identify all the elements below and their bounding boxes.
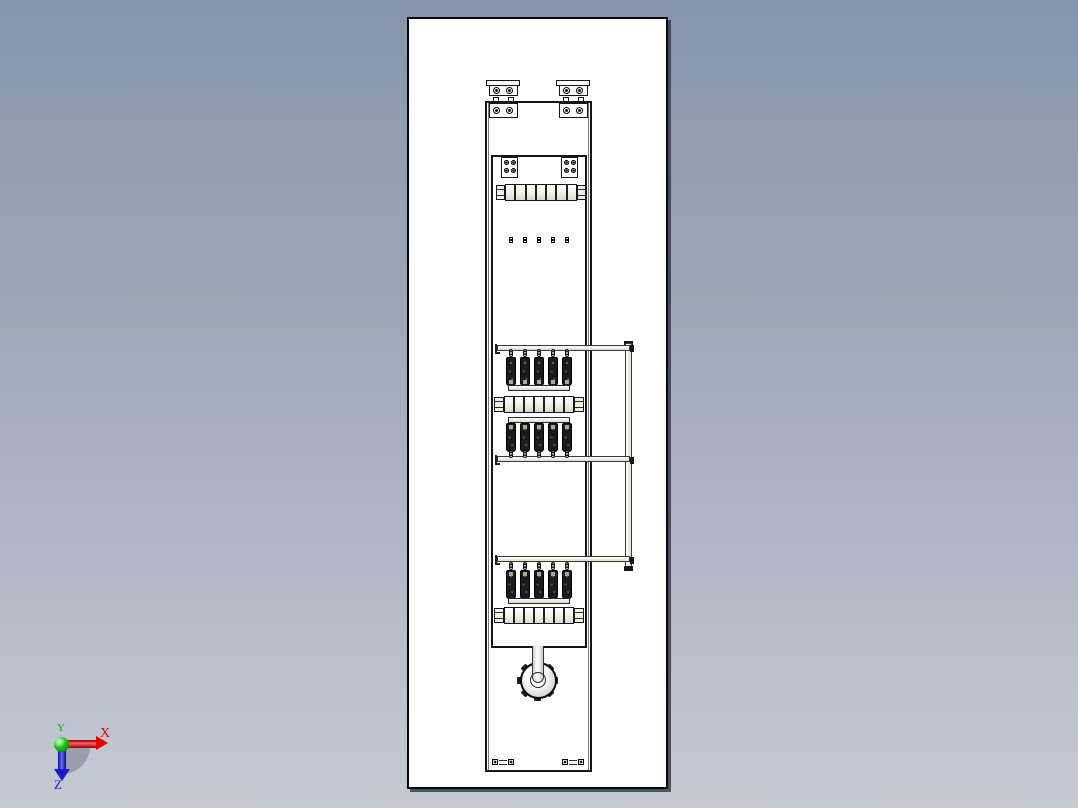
busbar-cap [574, 397, 584, 412]
bracket-tab [578, 97, 584, 102]
busbar-cap [496, 185, 505, 200]
screw-icon [564, 168, 569, 173]
bus-seg [535, 397, 545, 412]
bracket-tab [493, 97, 499, 102]
bus-seg [565, 608, 573, 623]
fuse[interactable] [548, 423, 558, 452]
screw-icon [571, 160, 576, 165]
bus-seg [568, 185, 576, 200]
top-busbar[interactable] [505, 184, 577, 201]
bus-seg [516, 185, 526, 200]
bracket-lower-box [559, 103, 588, 118]
mid-busbar[interactable] [504, 396, 574, 413]
fuse[interactable] [520, 423, 530, 452]
term [551, 450, 555, 458]
fuse[interactable] [548, 357, 558, 386]
bracket-lower-box [489, 103, 518, 118]
lower-busbar[interactable] [504, 607, 574, 624]
fuse[interactable] [520, 357, 530, 386]
arm-joint [630, 557, 634, 564]
term [523, 349, 527, 357]
viewport[interactable]: Y X Z [0, 0, 1078, 808]
screw-icon [571, 168, 576, 173]
busbar-cap [494, 608, 504, 623]
base-screw-pair [562, 758, 584, 766]
screw-icon [504, 168, 509, 173]
x-axis-arrow[interactable] [67, 740, 97, 748]
fuse[interactable] [562, 423, 572, 452]
bus-seg [515, 608, 525, 623]
handle-hub [530, 672, 546, 688]
terminal-block-left[interactable] [501, 157, 518, 178]
bus-seg [525, 397, 535, 412]
fuse-row-2[interactable] [506, 423, 572, 452]
bus-seg [545, 608, 555, 623]
dot [523, 237, 527, 243]
arm-joint [630, 457, 634, 464]
fuse[interactable] [562, 357, 572, 386]
term [565, 562, 569, 570]
bus-seg [506, 185, 516, 200]
y-axis-ball-icon[interactable] [54, 737, 69, 752]
bracket-tab [508, 97, 514, 102]
bus-seg [505, 608, 515, 623]
x-axis-label: X [100, 726, 110, 742]
term [537, 562, 541, 570]
screw-icon [504, 160, 509, 165]
term [551, 562, 555, 570]
bus-seg [527, 185, 537, 200]
screw-icon [506, 87, 513, 94]
bracket-upper-box [489, 85, 518, 96]
terminal-row [509, 562, 569, 570]
dot [565, 237, 569, 243]
screw-icon [562, 759, 568, 765]
bus-seg [565, 397, 573, 412]
busbar-cap [577, 185, 586, 200]
dot [537, 237, 541, 243]
base-screw-pair [492, 758, 514, 766]
fuse-rail [508, 385, 570, 391]
bus-seg [505, 397, 515, 412]
term [509, 349, 513, 357]
y-axis-label: Y [57, 722, 65, 734]
screw-dots-row [509, 237, 569, 243]
screw-link [569, 760, 577, 765]
fuse[interactable] [506, 570, 516, 599]
term [523, 450, 527, 458]
bus-seg [555, 608, 565, 623]
dot [551, 237, 555, 243]
z-axis-label: Z [54, 777, 62, 793]
term [565, 349, 569, 357]
fuse[interactable] [548, 570, 558, 599]
dot [509, 237, 513, 243]
screw-icon [578, 759, 584, 765]
arm-hook [495, 455, 500, 465]
terminal-row [509, 450, 569, 458]
fuse-row-1[interactable] [506, 357, 572, 386]
fuse-rail [508, 598, 570, 604]
bus-seg [547, 185, 557, 200]
mounting-bracket-left[interactable] [486, 80, 520, 118]
mounting-bracket-right[interactable] [556, 80, 590, 118]
screw-link [499, 760, 507, 765]
z-axis-arrow[interactable] [58, 749, 66, 771]
term [509, 562, 513, 570]
fuse[interactable] [534, 570, 544, 599]
bus-seg [557, 185, 567, 200]
bus-seg [535, 608, 545, 623]
fuse[interactable] [506, 357, 516, 386]
screw-icon [506, 107, 513, 114]
term [537, 450, 541, 458]
orientation-triad[interactable]: Y X Z [25, 715, 135, 800]
bus-seg [515, 397, 525, 412]
bus-seg [525, 608, 535, 623]
screw-icon [576, 87, 583, 94]
screw-icon [563, 107, 570, 114]
busbar-cap [574, 608, 584, 623]
fuse[interactable] [506, 423, 516, 452]
screw-icon [493, 107, 500, 114]
fuse[interactable] [534, 423, 544, 452]
terminal-block-right[interactable] [561, 157, 578, 178]
term [565, 450, 569, 458]
screw-icon [493, 87, 500, 94]
screw-icon [576, 107, 583, 114]
fuse[interactable] [562, 570, 572, 599]
busbar-cap [494, 397, 504, 412]
rail-cap-bottom [624, 566, 633, 571]
term [537, 349, 541, 357]
arm-joint [630, 345, 634, 352]
bracket-tab [563, 97, 569, 102]
screw-icon [511, 168, 516, 173]
bus-seg [537, 185, 547, 200]
fuse-row-3[interactable] [506, 570, 572, 599]
screw-icon [563, 87, 570, 94]
arm-hook [495, 344, 500, 354]
bus-seg [545, 397, 555, 412]
screw-icon [492, 759, 498, 765]
bracket-upper-box [559, 85, 588, 96]
term [509, 450, 513, 458]
arm-hook [495, 555, 500, 565]
fuse[interactable] [520, 570, 530, 599]
screw-icon [564, 160, 569, 165]
fuse[interactable] [534, 357, 544, 386]
term [551, 349, 555, 357]
term [523, 562, 527, 570]
terminal-row [509, 349, 569, 357]
screw-icon [508, 759, 514, 765]
screw-icon [511, 160, 516, 165]
bus-seg [555, 397, 565, 412]
